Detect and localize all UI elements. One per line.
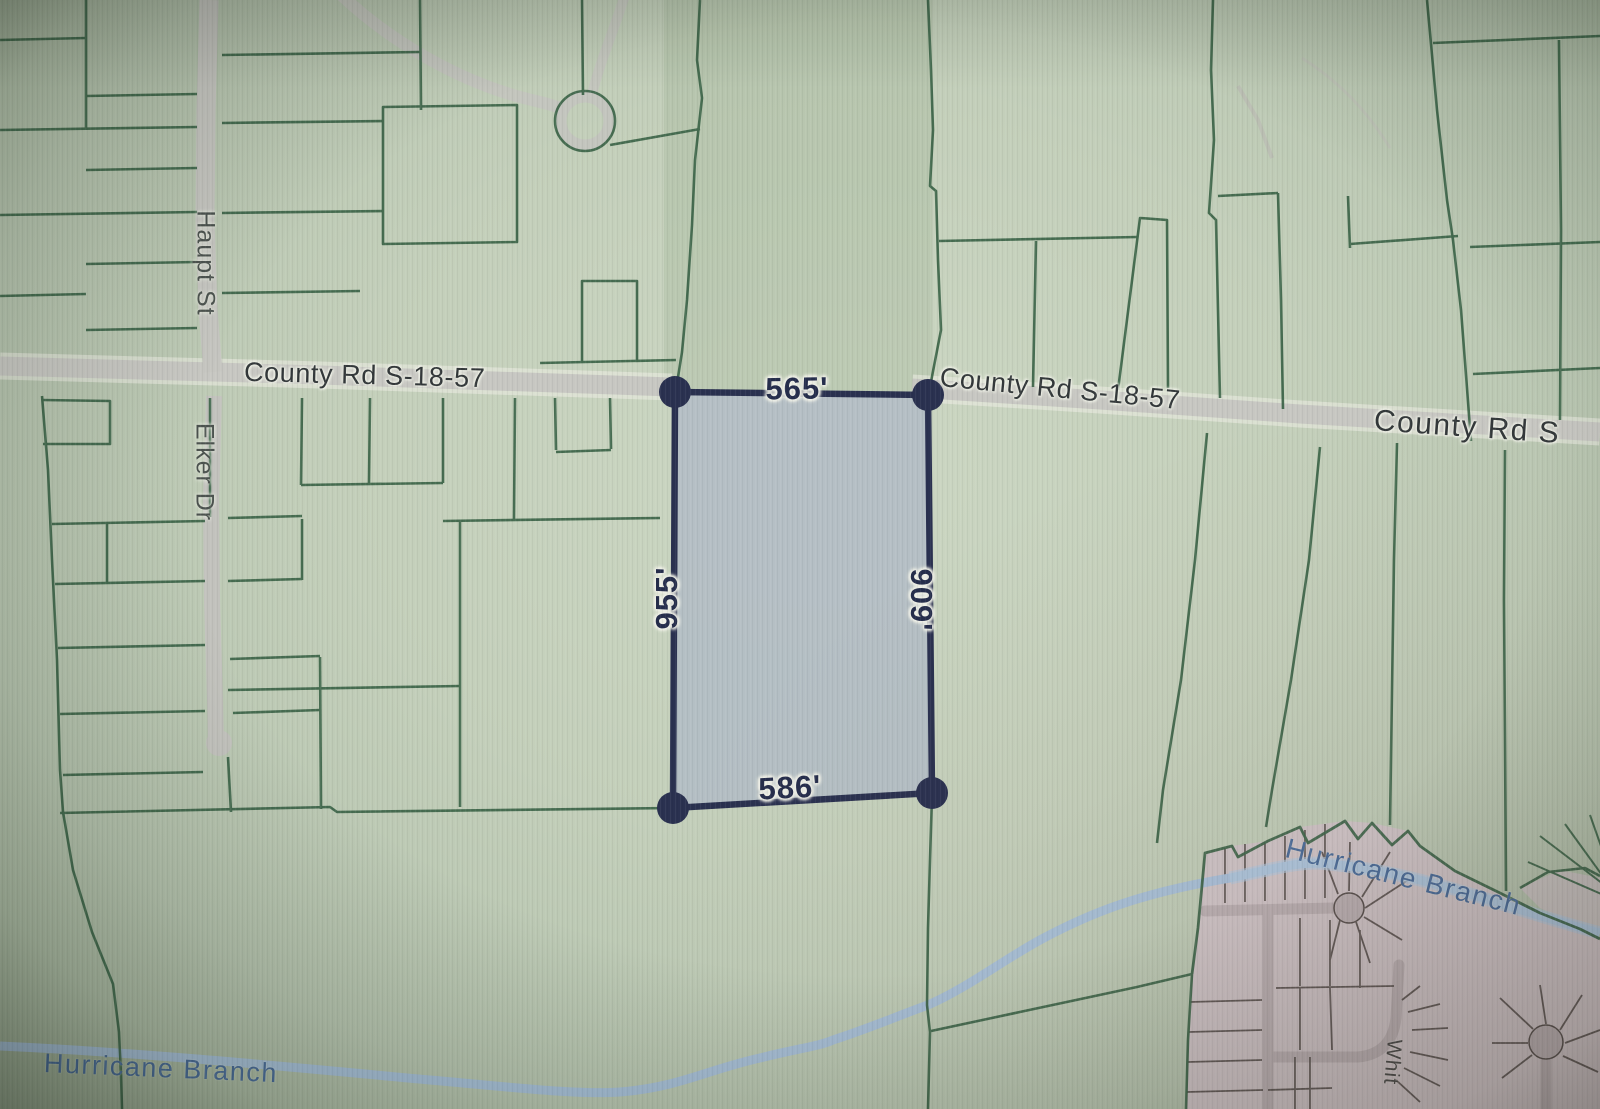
field-strip-shade <box>664 0 932 392</box>
curvy-road <box>338 0 564 110</box>
haupt-st-road <box>205 0 213 372</box>
vertex-dot-nw[interactable] <box>659 376 691 408</box>
map-canvas <box>0 0 1600 1109</box>
road-loop <box>561 97 609 145</box>
vertex-dot-se[interactable] <box>916 777 948 809</box>
selected-parcel-group <box>657 376 948 824</box>
vertex-dot-ne[interactable] <box>912 379 944 411</box>
culdesac-west <box>1334 893 1364 923</box>
elker-culdesac <box>206 730 232 756</box>
elker-dr-road <box>211 396 216 742</box>
map-viewport[interactable]: County Rd S-18-57 County Rd S-18-57 Coun… <box>0 0 1600 1109</box>
culdesac-east <box>1529 1025 1563 1059</box>
subdivision-area <box>1186 821 1600 1109</box>
vertex-dot-sw[interactable] <box>657 792 689 824</box>
subdivision-layer <box>1186 821 1600 1109</box>
selected-parcel[interactable] <box>673 392 932 808</box>
